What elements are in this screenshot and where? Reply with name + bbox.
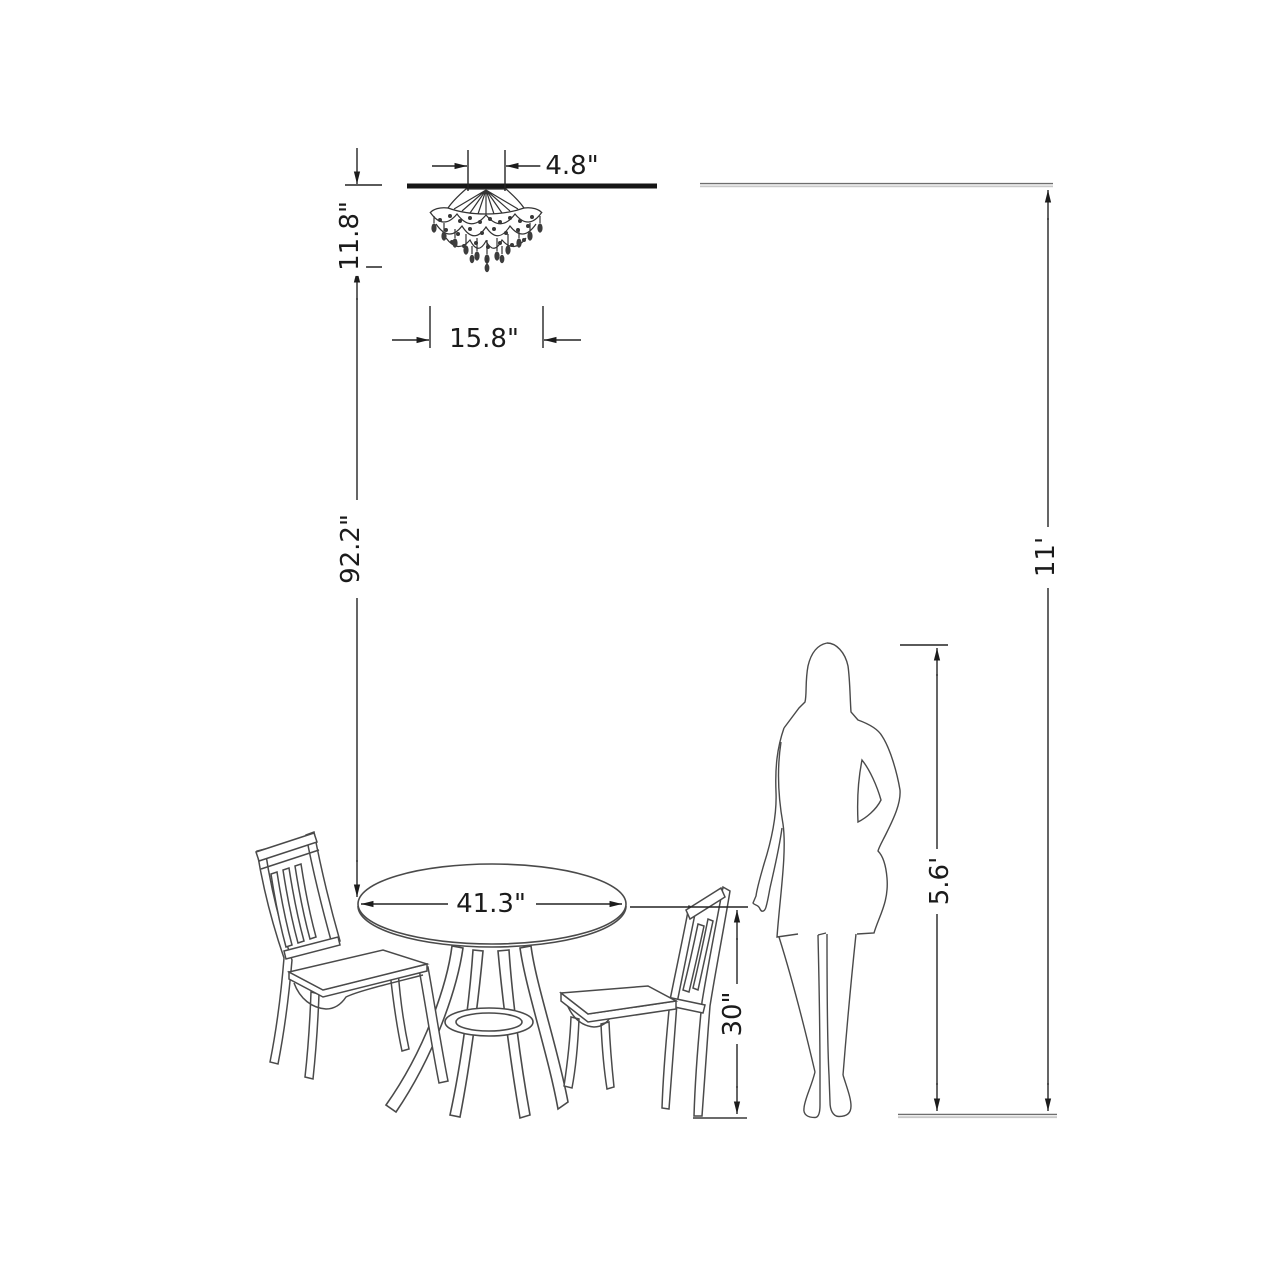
dim-label-ceiling-height: 11' — [1032, 532, 1062, 582]
chandelier-drops — [431, 216, 542, 272]
diagram-canvas: 4.8" 11.8" 15.8" 92.2" 41.3" 30" 5.6' 11… — [0, 0, 1280, 1280]
dim-label-table-height: 30" — [719, 986, 749, 1041]
ceiling-guide-line — [700, 184, 1053, 187]
dimension-drawing — [0, 0, 1280, 1280]
person-silhouette — [753, 643, 900, 1118]
dim-label-chandelier-height: 11.8" — [336, 196, 366, 276]
dim-label-person-height: 5.6' — [926, 852, 956, 911]
dim-label-table-diameter: 41.3" — [451, 890, 531, 920]
table-stretcher-ring — [445, 1008, 533, 1036]
dim-label-chandelier-to-table: 92.2" — [337, 509, 367, 589]
chandelier-drawing — [430, 189, 543, 272]
floor-guide-line — [898, 1114, 1057, 1117]
chandelier-canopy — [430, 189, 542, 214]
dim-label-canopy-width: 4.8" — [540, 152, 603, 182]
dim-label-chandelier-width: 15.8" — [444, 325, 524, 355]
